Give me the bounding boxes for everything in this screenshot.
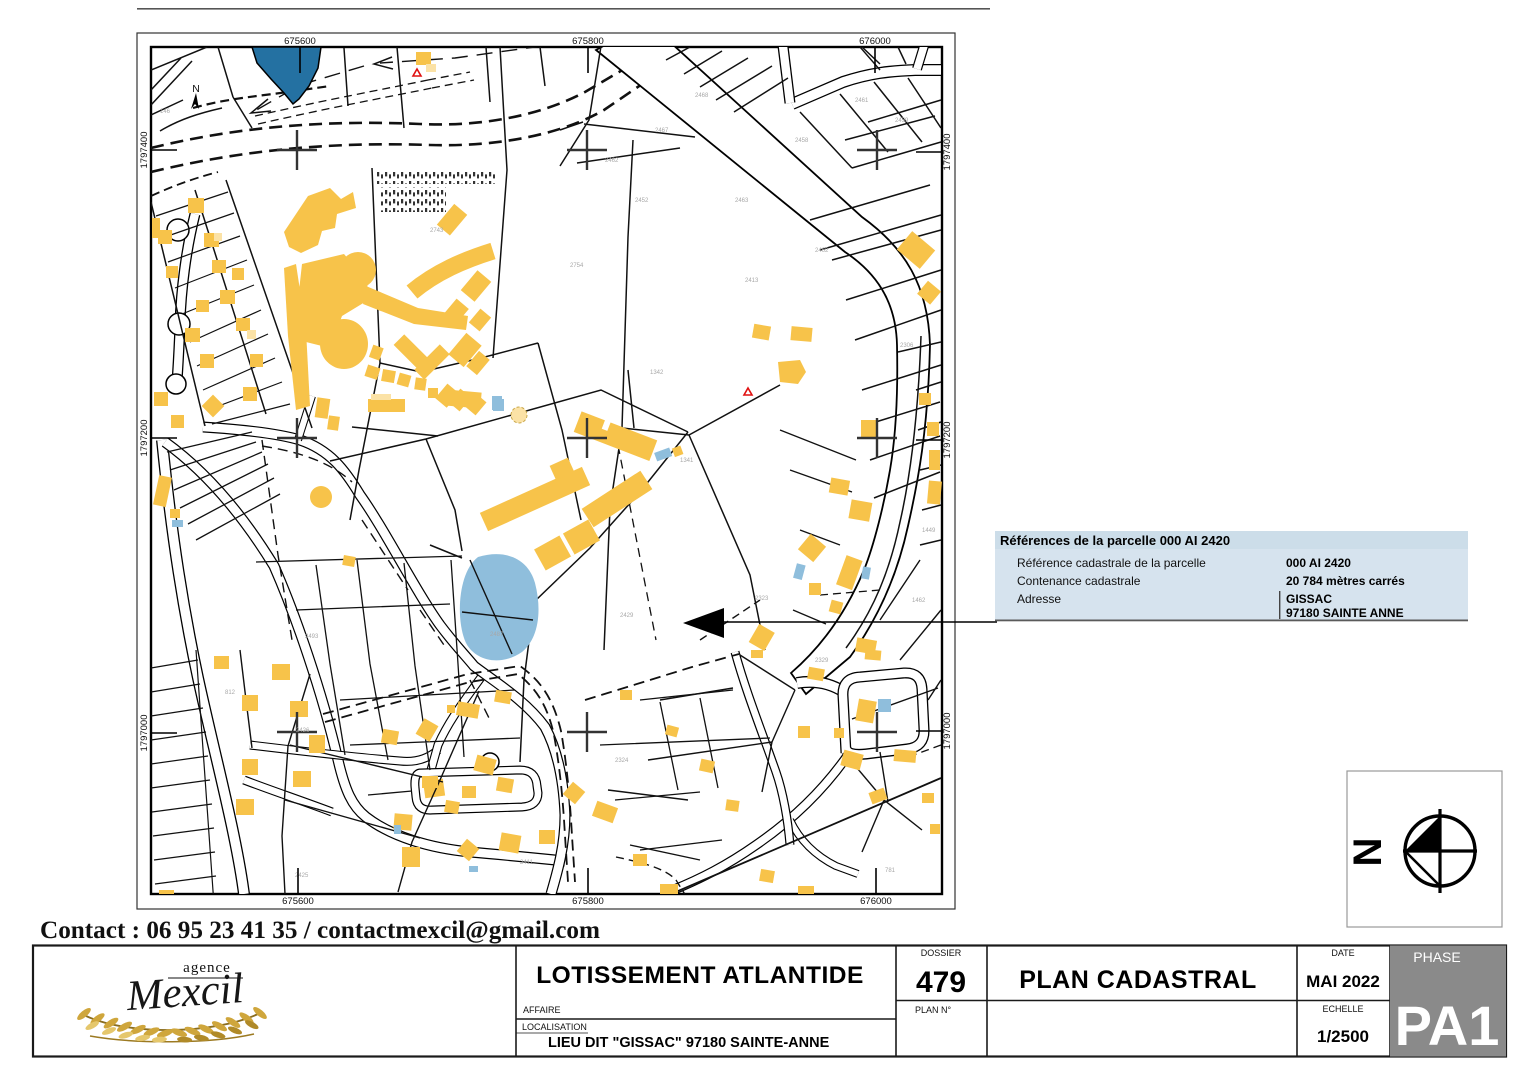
svg-text:2329: 2329 xyxy=(815,658,829,664)
svg-text:2462: 2462 xyxy=(815,248,829,254)
svg-text:675800: 675800 xyxy=(572,36,604,47)
svg-text:2467: 2467 xyxy=(655,128,669,134)
svg-text:MAI 2022: MAI 2022 xyxy=(1306,972,1380,991)
svg-text:GISSAC: GISSAC xyxy=(1286,592,1332,606)
svg-text:DATE: DATE xyxy=(1331,948,1354,958)
svg-text:2323: 2323 xyxy=(755,596,769,602)
svg-text:676000: 676000 xyxy=(860,896,892,907)
svg-text:2411: 2411 xyxy=(520,860,534,866)
svg-text:2461: 2461 xyxy=(855,98,869,104)
svg-text:2459: 2459 xyxy=(895,118,909,124)
svg-text:781: 781 xyxy=(885,868,896,874)
svg-text:Contenance cadastrale: Contenance cadastrale xyxy=(1017,574,1141,588)
svg-text:AFFAIRE: AFFAIRE xyxy=(523,1005,561,1015)
svg-text:675600: 675600 xyxy=(282,896,314,907)
svg-text:1449: 1449 xyxy=(922,528,936,534)
svg-text:20 784 mètres carrés: 20 784 mètres carrés xyxy=(1286,574,1405,588)
svg-text:2426: 2426 xyxy=(296,728,310,734)
svg-text:000 AI 2420: 000 AI 2420 xyxy=(1286,556,1351,570)
svg-text:1797200: 1797200 xyxy=(942,422,953,459)
svg-text:Références de la parcelle 000: Références de la parcelle 000 AI 2420 xyxy=(1000,533,1230,548)
svg-text:812: 812 xyxy=(225,690,236,696)
svg-text:2413: 2413 xyxy=(745,278,759,284)
svg-text:97180 SAINTE ANNE: 97180 SAINTE ANNE xyxy=(1286,606,1404,620)
svg-text:DOSSIER: DOSSIER xyxy=(921,948,962,958)
svg-text:Adresse: Adresse xyxy=(1017,592,1061,606)
svg-text:Mexcil: Mexcil xyxy=(124,965,245,1020)
svg-text:1462: 1462 xyxy=(912,598,926,604)
svg-text:1342: 1342 xyxy=(650,370,664,376)
svg-text:LOTISSEMENT ATLANTIDE: LOTISSEMENT ATLANTIDE xyxy=(536,962,864,989)
svg-text:146: 146 xyxy=(160,109,171,115)
svg-text:2452: 2452 xyxy=(635,198,649,204)
svg-text:2754: 2754 xyxy=(570,263,584,269)
svg-text:PA1: PA1 xyxy=(1395,994,1500,1057)
svg-text:2493: 2493 xyxy=(305,634,319,640)
svg-text:479: 479 xyxy=(916,966,966,999)
svg-text:2487: 2487 xyxy=(490,632,504,638)
svg-text:LIEU DIT "GISSAC" 97180 SAINTE: LIEU DIT "GISSAC" 97180 SAINTE-ANNE xyxy=(548,1035,830,1051)
svg-text:1797400: 1797400 xyxy=(139,132,150,169)
svg-text:1341: 1341 xyxy=(680,458,694,464)
svg-text:PLAN N°: PLAN N° xyxy=(915,1005,952,1015)
svg-text:1797000: 1797000 xyxy=(942,713,953,750)
svg-text:2743: 2743 xyxy=(430,228,444,234)
svg-text:675800: 675800 xyxy=(572,896,604,907)
svg-text:LOCALISATION: LOCALISATION xyxy=(522,1022,587,1032)
svg-text:2324: 2324 xyxy=(615,758,629,764)
svg-text:ECHELLE: ECHELLE xyxy=(1322,1004,1363,1014)
svg-text:676000: 676000 xyxy=(859,36,891,47)
svg-text:PHASE: PHASE xyxy=(1413,949,1460,965)
svg-text:2463: 2463 xyxy=(735,198,749,204)
svg-text:1/2500: 1/2500 xyxy=(1317,1027,1369,1046)
svg-text:PLAN CADASTRAL: PLAN CADASTRAL xyxy=(1019,966,1257,994)
svg-text:N: N xyxy=(1346,838,1390,867)
svg-text:675600: 675600 xyxy=(284,36,316,47)
svg-text:2462: 2462 xyxy=(605,158,619,164)
svg-text:Référence cadastrale de la par: Référence cadastrale de la parcelle xyxy=(1017,556,1206,570)
svg-text:1797400: 1797400 xyxy=(942,134,953,171)
svg-text:2306: 2306 xyxy=(900,343,914,349)
svg-text:1797000: 1797000 xyxy=(139,715,150,752)
svg-text:1797200: 1797200 xyxy=(139,420,150,457)
svg-text:2425: 2425 xyxy=(295,873,309,879)
svg-text:Contact : 06 95 23 41 35 / con: Contact : 06 95 23 41 35 / contactmexcil… xyxy=(40,917,600,944)
svg-text:2429: 2429 xyxy=(620,613,634,619)
svg-text:2458: 2458 xyxy=(795,138,809,144)
svg-text:2468: 2468 xyxy=(695,93,709,99)
